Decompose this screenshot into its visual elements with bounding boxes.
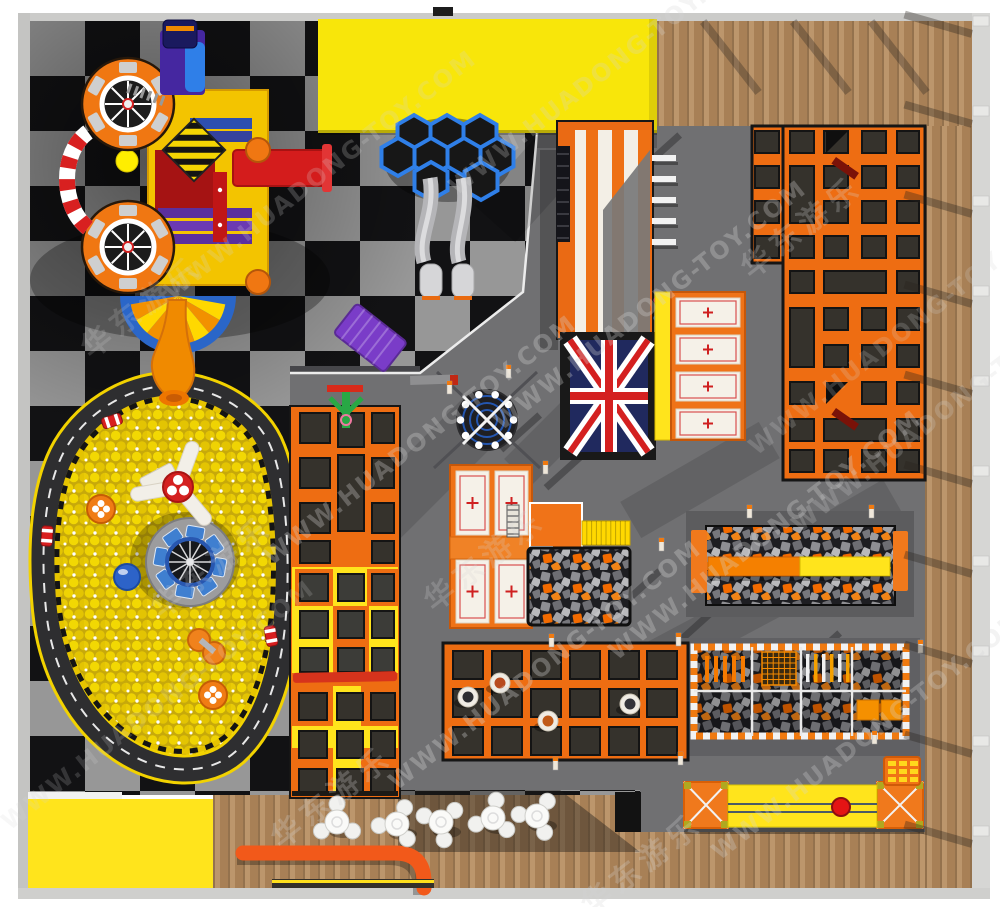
post-cap [659,538,664,542]
beam-shadow [700,19,762,95]
hoop-bar [327,385,363,392]
wall-stud [973,16,989,26]
trampoline-bed [897,382,919,404]
beam-shadow [790,19,852,95]
highlight [118,569,128,575]
table [325,810,349,834]
wall-bar [652,176,676,182]
wheel-pad [119,62,137,73]
slide-base-inner [166,394,182,402]
trampoline-bed [300,574,328,601]
trampoline-bed [790,131,814,153]
trampoline-bed [372,574,394,601]
lane-deck [728,785,877,827]
star [218,188,222,192]
trampoline-bed [570,689,600,717]
stud-shadow [904,821,973,848]
wheel-hub [123,99,133,109]
trampoline-bed [824,450,848,472]
trampoline-bed [897,166,919,188]
trampoline-bed [372,648,394,672]
obstacle-post [714,656,718,682]
wall-bar [652,155,676,161]
yellow-ball [116,150,138,172]
trampoline-bed [299,769,327,793]
climbing-hold [888,769,896,774]
trampoline-bed [824,271,886,293]
wheel-pad [119,205,137,216]
scene-graphics [0,0,1000,907]
hub-petal [167,486,177,496]
trampoline-bed [790,166,814,223]
trampoline-bed [338,611,364,638]
trampoline-bed [337,693,363,720]
purple-wedge-mat [333,303,407,372]
hexagon-trampoline [382,138,415,176]
trampoline-bed [755,201,779,223]
table [525,804,549,828]
trampoline-bed [300,648,328,672]
blue-ball [114,564,140,590]
trampoline-bed [570,651,600,679]
truss-corner [721,782,728,789]
table [481,806,505,830]
trampoline-bed [371,769,395,793]
trampoline-bed [897,345,919,367]
soft-play-structure [30,20,332,406]
pit-end-pad [691,530,707,593]
web-dot [491,441,499,449]
side-wheel [246,138,270,162]
obstacle-post [732,656,736,682]
stud-shadow [904,101,973,128]
beam-shadow [708,576,890,581]
trampoline-bed [300,611,328,638]
trampoline-bed [338,455,364,531]
union-jack-flag [570,340,648,452]
bar-shadow [654,162,678,165]
star-panel [213,172,227,242]
wall-bar [652,218,676,224]
wall-bar [652,239,676,245]
trampoline-bed [647,651,677,679]
trampoline-bed [647,689,677,717]
obstacle-post [705,656,709,682]
trampoline-bed [824,345,848,367]
post-cap [747,505,752,509]
bar-shadow [654,225,678,228]
web-dot [510,416,518,424]
dodgeball-center [495,678,506,689]
top-wall-door [433,7,453,16]
race-car [41,526,53,547]
trampoline-bed [824,201,848,223]
trampoline-bed [790,382,814,404]
trampoline-park-render: 华东游乐WWW.HUADONG-TOY.COMWWW.HUADONG-TOY.C… [0,0,1000,907]
post-cap [678,752,683,756]
wall-stud [973,556,989,566]
bar-shadow [654,204,678,207]
web-dot [491,391,499,399]
trampoline-bed [897,308,919,330]
strip-bottom-rim [292,791,398,796]
table [429,810,453,834]
bar-shadow [654,246,678,249]
post-cap [553,757,558,761]
trampoline-bed [372,413,394,443]
seat-dot [215,692,222,699]
web-dot [457,416,465,424]
trampoline-bed [337,731,363,758]
wall-stud [973,466,989,476]
seat-dot [98,500,105,507]
tube-exit-mat [454,296,472,300]
trampoline-bed [570,727,600,755]
climbing-hold [899,777,907,782]
truss-corner [684,782,691,789]
climbing-hold [910,777,918,782]
dodgeball-center [625,699,636,710]
wall-stud [973,106,989,116]
trampoline-bed [897,201,919,223]
trampoline-bed [337,769,363,793]
slide-bumper [322,144,332,192]
air-mattress-stack [655,292,745,440]
foam-cube-pit [528,548,630,625]
trampoline-bed [862,308,886,330]
seat-dot [210,697,217,704]
trampoline-bed [647,727,677,755]
yellow-banner-zone [318,19,657,133]
banner-area [318,7,657,135]
landing-mat [881,700,901,720]
hub-petal [173,475,183,485]
play-vehicle [163,20,197,48]
beam-shadow [868,19,930,95]
ball-pit-with-race-track [41,386,288,770]
trampoline-bed [790,236,814,258]
hanging-strip [846,654,850,682]
trampoline-bed [862,131,886,153]
ninja-obstacle-pit [680,638,920,756]
stud-shadow [904,11,973,38]
post-cap [869,505,874,509]
wall-stud [973,286,989,296]
hanging-strip [830,654,834,682]
dodgeball-center [543,716,554,727]
slide-lane-stripe [586,130,598,335]
post-cap [872,731,877,735]
wall-trampoline-column [290,385,400,798]
seat-dot [98,511,105,518]
trampoline-bed [609,727,639,755]
hub-petal [179,486,189,496]
dodgeball-trampoline-court [443,643,688,760]
climbing-hold [910,761,918,766]
flag-cross-red [570,392,648,400]
trampoline-bed [531,651,561,679]
yellow-side-mat [655,292,671,440]
wheel-pad [119,135,137,146]
trampoline-bed [824,236,848,258]
climbing-hold [888,761,896,766]
wall-stud [973,196,989,206]
trampoline-bed [300,541,330,563]
purple-step [158,208,252,218]
bench-rail-yellow [272,880,434,883]
bar-shadow [654,183,678,186]
balance-beam-yellow [800,557,890,576]
balance-beam-foam-pit [686,511,914,617]
hanging-strip [806,654,810,682]
wall-stud [973,646,989,656]
trampoline-bed [897,419,919,441]
pit-end-pad [893,531,908,591]
trampoline-bed [372,458,394,488]
side-wheel [246,270,270,294]
trampoline-bed [862,236,886,258]
seat-dot [92,506,99,513]
truss-corner [684,821,691,828]
trampoline-bed [755,236,779,258]
truss-corner [721,821,728,828]
trampoline-bed [790,419,814,441]
climbing-hold [888,777,896,782]
vehicle-stripe [166,26,194,31]
trampoline-bed [338,574,364,601]
post-cap [676,633,681,637]
tube-exit-mat [422,296,440,300]
trampoline-bed [492,727,522,755]
swing-ball [832,798,850,816]
trampoline-bed [897,131,919,153]
trampoline-bed [862,201,886,223]
trampoline-bed [299,693,327,720]
trampoline-bed [372,541,394,563]
balance-beam-orange [708,557,800,576]
trampoline-bed [300,413,330,443]
trampoline-bed [338,648,364,672]
climbing-hold [899,761,907,766]
trampoline-bed [372,503,394,533]
star [218,223,222,227]
wall-stud [973,736,989,746]
climbing-hold [910,769,918,774]
trampoline-bed [453,727,483,755]
trampoline-bed [300,458,330,488]
trampoline-bed [824,308,848,330]
trampoline-bed [372,611,394,638]
trampoline-bed [755,166,779,188]
landing-mat [857,700,879,720]
post-cap [447,381,452,385]
post-cap [543,461,548,465]
trampoline-bed [862,166,886,188]
trampoline-bed [862,382,886,404]
truss-corner [877,782,884,789]
climbing-hold [899,769,907,774]
trampoline-bed [862,450,886,472]
foam-cube-pit [528,548,630,625]
mid-walkway [450,537,532,559]
trampoline-bed [609,651,639,679]
trampoline-bed [371,693,395,720]
seat-dot [204,692,211,699]
mushroom-seat [199,681,227,709]
wall-stud [973,376,989,386]
tower-shadow [540,150,558,350]
obstacle-post [723,656,727,682]
wall-stud [973,826,989,836]
purple-step [158,221,252,231]
wheel-pad [119,278,137,289]
seat-dot [210,686,217,693]
web-dot [475,391,483,399]
hanging-strip [822,654,826,682]
mushroom-seat [87,495,115,523]
truss-corner [877,821,884,828]
trampoline-bed [371,731,395,758]
floor-notch [615,792,641,832]
red-beam [293,671,397,683]
trampoline-bed [453,651,483,679]
table [385,812,409,836]
trampoline-bed [300,503,330,533]
bench-shadow [237,860,418,895]
post-cap [918,640,923,644]
wheel-hub [123,242,133,252]
wall-bar [652,197,676,203]
wheel-hub [186,558,194,566]
tube-exit [452,264,474,298]
post-cap [549,634,554,638]
trampoline-bed [790,271,814,293]
hanging-strip [838,654,842,682]
trampoline-bed [862,345,886,367]
web-dot [475,441,483,449]
trampoline-bed [897,236,919,258]
trampoline-bed [790,450,814,472]
trampoline-bed [755,131,779,153]
trampoline-bed [299,731,327,758]
trampoline-bed [790,308,814,367]
blue-slide-lane [185,42,205,92]
tower-ladder [556,146,570,242]
dodgeball-center [463,692,474,703]
obstacle-post [741,656,745,682]
post-cap [506,365,511,369]
tube-exit [420,264,442,298]
seat-dot [103,506,110,513]
hanging-strip [814,654,818,682]
